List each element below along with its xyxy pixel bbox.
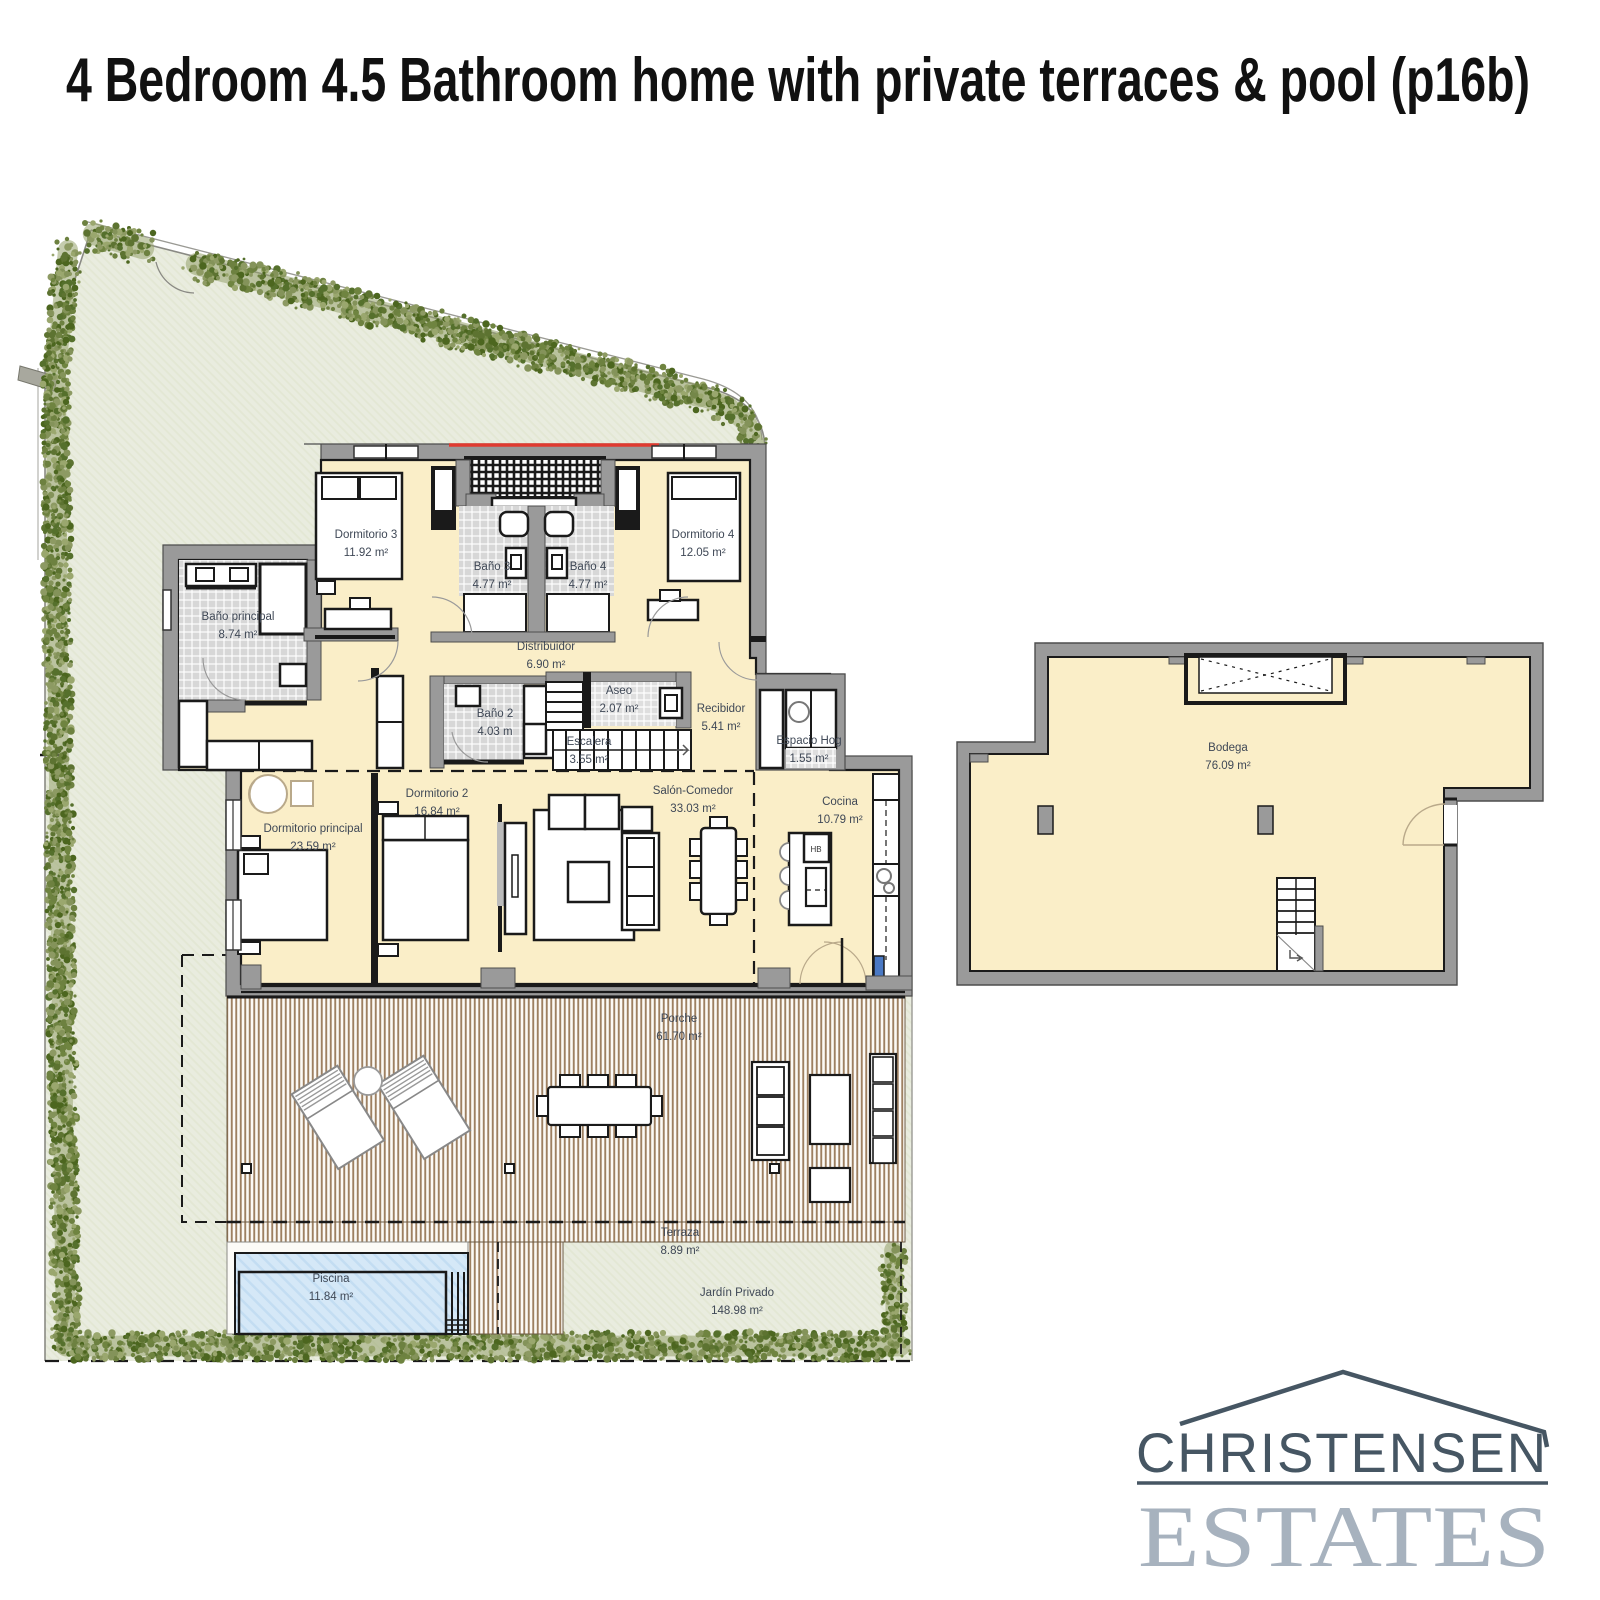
- svg-text:Distribuidor: Distribuidor: [517, 641, 575, 653]
- svg-text:Baño 4: Baño 4: [570, 561, 607, 573]
- svg-text:10.79 m²: 10.79 m²: [817, 814, 863, 826]
- svg-text:CHRISTENSEN: CHRISTENSEN: [1136, 1421, 1548, 1484]
- svg-text:148.98 m²: 148.98 m²: [711, 1305, 763, 1317]
- svg-text:16.84 m²: 16.84 m²: [414, 806, 460, 818]
- svg-text:Aseo: Aseo: [606, 685, 632, 697]
- svg-text:3.55 m²: 3.55 m²: [570, 754, 609, 766]
- svg-text:Terraza: Terraza: [661, 1227, 700, 1239]
- svg-text:8.74 m²: 8.74 m²: [219, 629, 258, 641]
- svg-text:Piscina: Piscina: [312, 1273, 350, 1285]
- svg-text:Porche: Porche: [661, 1013, 697, 1025]
- svg-text:Dormitorio 4: Dormitorio 4: [672, 529, 735, 541]
- svg-text:Baño principal: Baño principal: [202, 611, 275, 623]
- svg-text:76.09 m²: 76.09 m²: [1205, 760, 1251, 772]
- svg-text:4.03 m: 4.03 m: [477, 726, 512, 738]
- svg-text:2.07 m²: 2.07 m²: [600, 703, 639, 715]
- svg-text:Baño 2: Baño 2: [477, 708, 513, 720]
- svg-text:Cocina: Cocina: [822, 796, 858, 808]
- svg-text:Escalera: Escalera: [567, 736, 612, 748]
- svg-text:1.55 m²: 1.55 m²: [790, 753, 829, 765]
- svg-text:4.77 m²: 4.77 m²: [569, 579, 608, 591]
- svg-text:4 Bedroom 4.5 Bathroom home wi: 4 Bedroom 4.5 Bathroom home with private…: [66, 46, 1530, 115]
- svg-text:Jardín Privado: Jardín Privado: [700, 1287, 774, 1299]
- svg-text:ESTATES: ESTATES: [1138, 1489, 1550, 1586]
- svg-text:HB: HB: [810, 845, 821, 854]
- svg-text:12.05 m²: 12.05 m²: [680, 547, 726, 559]
- svg-text:5.41 m²: 5.41 m²: [702, 721, 741, 733]
- svg-text:23.59 m²: 23.59 m²: [290, 841, 336, 853]
- svg-text:Bodega: Bodega: [1208, 742, 1248, 754]
- svg-text:11.92 m²: 11.92 m²: [344, 547, 389, 559]
- svg-text:Dormitorio 2: Dormitorio 2: [406, 788, 469, 800]
- svg-text:Espacio Hog: Espacio Hog: [776, 735, 841, 747]
- svg-text:11.84 m²: 11.84 m²: [309, 1291, 354, 1303]
- svg-text:61.70 m²: 61.70 m²: [656, 1031, 702, 1043]
- svg-text:Recibidor: Recibidor: [697, 703, 746, 715]
- svg-text:Dormitorio principal: Dormitorio principal: [263, 823, 362, 835]
- svg-text:33.03 m²: 33.03 m²: [670, 803, 716, 815]
- svg-text:6.90 m²: 6.90 m²: [527, 659, 566, 671]
- svg-text:4.77 m²: 4.77 m²: [473, 579, 512, 591]
- svg-text:Salón-Comedor: Salón-Comedor: [653, 785, 734, 797]
- svg-text:Dormitorio 3: Dormitorio 3: [335, 529, 398, 541]
- svg-text:Baño 3: Baño 3: [474, 561, 510, 573]
- svg-text:8.89 m²: 8.89 m²: [661, 1245, 700, 1257]
